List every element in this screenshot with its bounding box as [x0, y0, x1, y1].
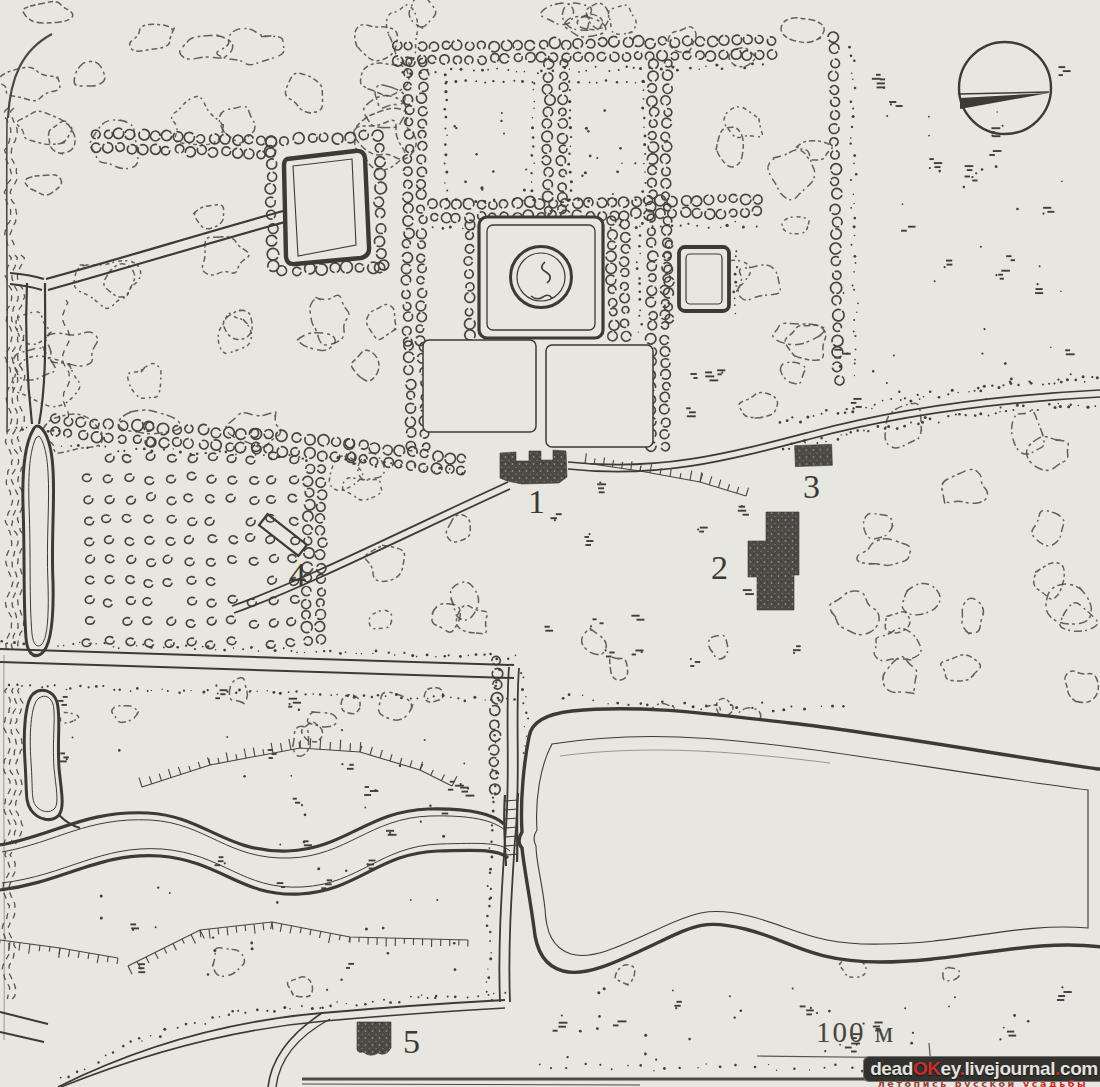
marker-label-2: 2 [711, 549, 728, 586]
scanned-map-page: 1 2 3 4 5 100 м deadOKey.livejournal.com… [0, 0, 1100, 1087]
scale-label: 100 м [816, 1016, 895, 1048]
garden-quarter-east [546, 345, 653, 447]
building-1 [500, 450, 567, 484]
building-5 [357, 1022, 391, 1055]
building-3 [795, 444, 833, 466]
marker-label-4: 4 [289, 556, 306, 593]
parterre-square [479, 217, 603, 338]
garden-quarter-west [423, 340, 536, 432]
estate-plan-map: 1 2 3 4 5 100 м [0, 0, 1100, 1087]
watermark-site-label: deadOKey.livejournal.com [870, 1058, 1098, 1080]
watermark-tagline-main: летопись русской [878, 1079, 1017, 1087]
watermark-tagline: летопись русской усадьбы [863, 1079, 1100, 1087]
watermark-tagline-accent: усадьбы [1023, 1079, 1088, 1087]
square-pond [284, 151, 369, 264]
upper-narrow-pond [23, 426, 54, 656]
marker-label-5: 5 [403, 1023, 420, 1060]
marker-label-3: 3 [803, 468, 820, 505]
marker-label-1: 1 [528, 483, 545, 520]
